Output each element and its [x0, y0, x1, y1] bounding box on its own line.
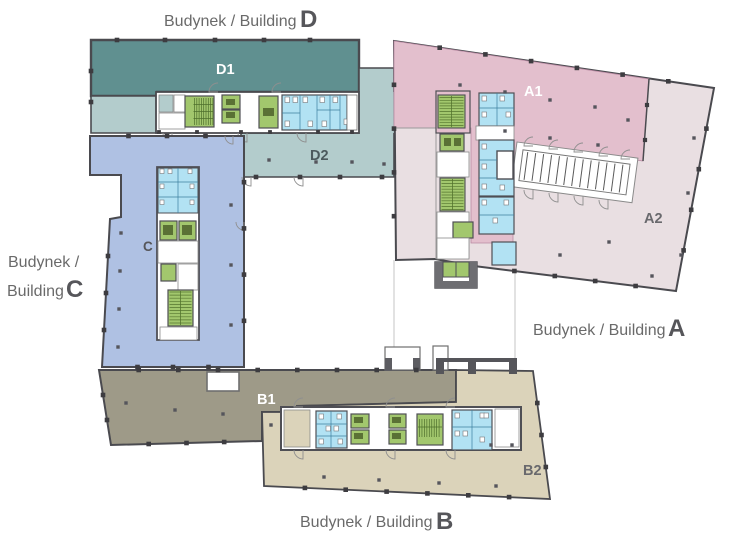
svg-text:D2: D2 [310, 148, 329, 164]
svg-text:D1: D1 [216, 62, 235, 78]
svg-text:C: C [66, 276, 83, 303]
svg-text:Budynek / Building: Budynek / Building [300, 514, 433, 531]
svg-text:B2: B2 [523, 463, 542, 479]
svg-text:Budynek / Building: Budynek / Building [164, 13, 297, 30]
svg-text:C: C [143, 239, 153, 254]
svg-text:Budynek /: Budynek / [8, 254, 80, 271]
svg-text:Building: Building [7, 283, 64, 300]
svg-text:D: D [300, 6, 317, 33]
svg-text:A1: A1 [524, 84, 543, 100]
svg-text:A2: A2 [644, 211, 663, 227]
svg-text:B: B [436, 508, 453, 535]
svg-text:B1: B1 [257, 392, 276, 408]
svg-text:A: A [668, 315, 685, 342]
svg-text:Budynek / Building: Budynek / Building [533, 322, 666, 339]
